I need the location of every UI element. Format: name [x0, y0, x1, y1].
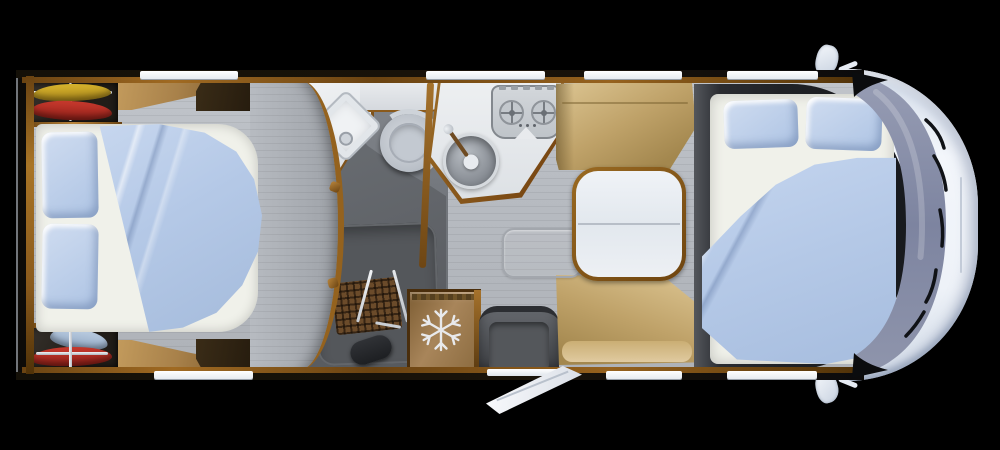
burner	[499, 100, 524, 125]
window	[154, 371, 253, 379]
pillow	[723, 99, 799, 150]
window	[426, 71, 545, 79]
hob-knob	[547, 86, 554, 90]
window	[727, 71, 818, 79]
window	[727, 371, 817, 379]
hob-dot	[526, 124, 529, 127]
fridge-vent	[412, 294, 476, 300]
wall-trim-rear	[26, 76, 34, 374]
hob-knob	[499, 86, 506, 90]
kitchen-sink	[443, 133, 499, 189]
hob-knob	[523, 86, 530, 90]
motorhome-floorplan	[0, 0, 1000, 450]
window	[140, 71, 238, 79]
windshield	[830, 60, 980, 390]
hob-knob	[535, 86, 542, 90]
hob-dot	[519, 124, 522, 127]
refrigerator	[407, 289, 481, 378]
snowflake-icon	[418, 307, 464, 353]
pillow	[41, 132, 98, 219]
hob-knob	[511, 86, 518, 90]
hanging-rail-bottom	[36, 352, 108, 355]
dinette-bench-top	[556, 81, 696, 170]
burner	[531, 100, 556, 125]
pillow	[41, 224, 98, 310]
hanger-bottom	[69, 330, 72, 368]
window	[606, 371, 682, 379]
curved-bathroom-wall	[250, 80, 344, 370]
window	[584, 71, 682, 79]
dinette-table	[576, 171, 682, 277]
floor-hatch	[502, 228, 582, 278]
hob-dot	[533, 124, 536, 127]
